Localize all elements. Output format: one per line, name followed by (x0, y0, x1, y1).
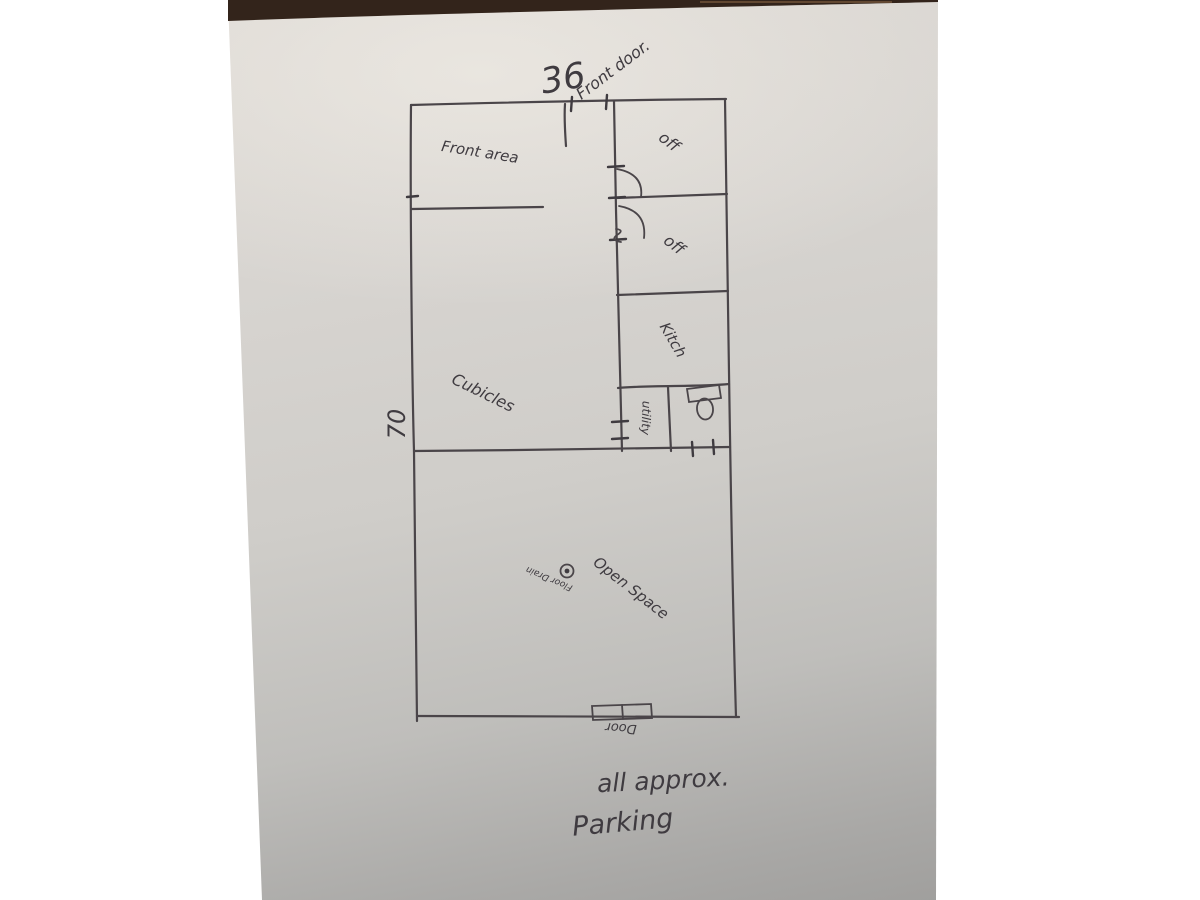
toilet-icon (687, 385, 721, 420)
utility-bath-divider (668, 387, 671, 451)
utility-label: utility (638, 401, 653, 436)
bottom-wall (417, 716, 739, 717)
office1-door-tick (608, 166, 624, 167)
screenshot-canvas: 36 Front door. Front area off off Kitch … (0, 0, 1200, 900)
entry-stub-wall (565, 104, 566, 146)
table-edge (228, 0, 938, 21)
office1-label: off (655, 128, 685, 158)
front-door-tick-right (606, 95, 607, 109)
drain-inner-dot (565, 569, 570, 574)
top-wall (411, 99, 726, 105)
office2-door-tick (610, 239, 626, 240)
cubicles-bottom-wall (414, 447, 730, 451)
floor-plan-sketch: 36 Front door. Front area off off Kitch … (0, 0, 1200, 900)
left-height-dimension: 70 (383, 409, 411, 440)
bath-door-tick-right (713, 440, 714, 454)
rear-door-middle (622, 705, 623, 719)
office2-label: off (660, 231, 690, 261)
office-divider-tick (609, 197, 625, 198)
utility-door-tick-top (612, 421, 628, 422)
handwritten-labels: 36 Front door. Front area off off Kitch … (383, 36, 730, 843)
front-area-label: Front area (440, 137, 520, 167)
left-wall-mark (407, 196, 418, 197)
left-wall-upper (411, 105, 414, 451)
office1-door-arc (617, 169, 641, 197)
utility-door-tick-bottom (612, 438, 628, 439)
toilet-bowl (696, 398, 714, 421)
door-swing-arc-icon (614, 169, 644, 242)
left-wall-lower (414, 451, 417, 721)
office-divider-2 (617, 291, 728, 295)
open-space-label: Open Space (590, 553, 672, 623)
front-area-partition (412, 207, 543, 209)
front-door-tick-left (571, 97, 572, 111)
table-strip (228, 0, 938, 21)
building-walls (411, 99, 739, 721)
all-approx-note: all approx. (596, 762, 730, 798)
front-door-label: Front door. (572, 36, 653, 104)
kitchen-label: Kitch (656, 319, 690, 361)
cubicles-label: Cubicles (449, 369, 518, 416)
office-divider-1 (616, 194, 727, 198)
bath-door-tick-left (692, 442, 693, 456)
central-wall (614, 101, 622, 451)
right-wall (725, 99, 736, 717)
floor-drain-icon (561, 565, 574, 578)
office2-door-arc (619, 206, 644, 238)
parking-note: Parking (571, 803, 675, 843)
rear-door-label: Door (603, 719, 637, 736)
